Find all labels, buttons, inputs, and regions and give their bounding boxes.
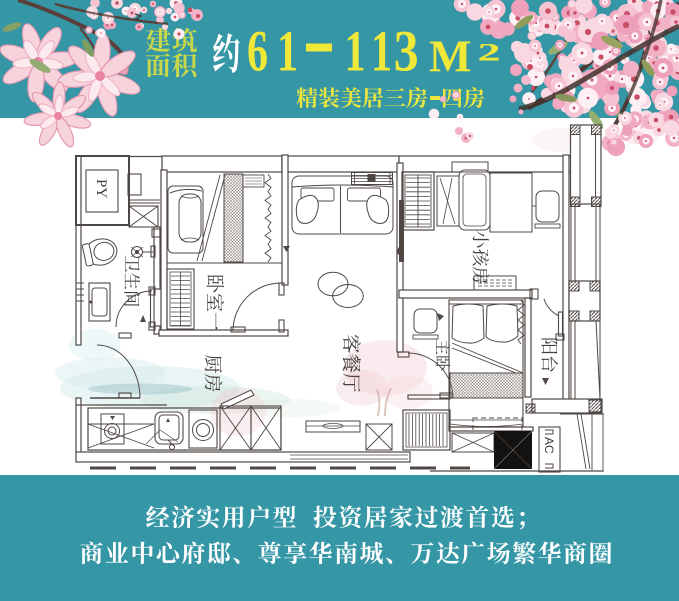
svg-text:1: 1 bbox=[345, 20, 366, 84]
svg-text:PY: PY bbox=[93, 179, 109, 198]
svg-text:3: 3 bbox=[394, 19, 419, 84]
svg-text:M: M bbox=[429, 32, 471, 82]
svg-text:6: 6 bbox=[247, 20, 268, 84]
svg-text:AC: AC bbox=[542, 437, 556, 454]
svg-text:1: 1 bbox=[371, 20, 392, 84]
svg-text:1: 1 bbox=[277, 20, 298, 84]
svg-text:2: 2 bbox=[478, 39, 501, 67]
